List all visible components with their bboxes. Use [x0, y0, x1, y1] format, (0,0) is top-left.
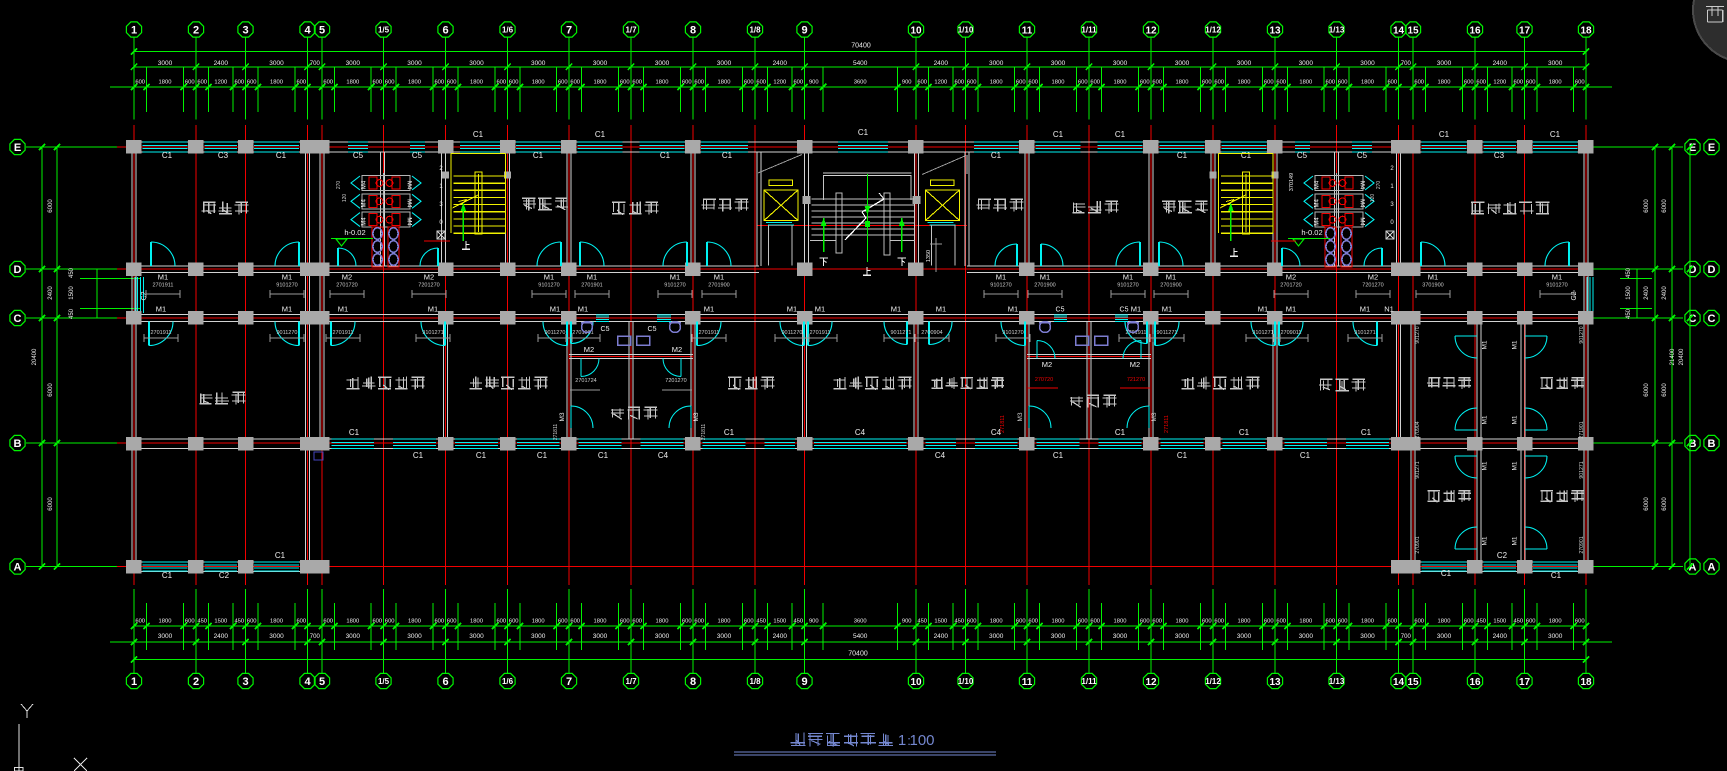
svg-text:1800: 1800 [1052, 619, 1065, 625]
svg-text:2701900: 2701900 [1034, 283, 1055, 289]
svg-text:M1: M1 [338, 305, 348, 314]
svg-text:M1: M1 [158, 273, 168, 282]
svg-text:6000: 6000 [48, 199, 54, 213]
svg-text:600: 600 [1028, 80, 1038, 86]
svg-text:700: 700 [1401, 634, 1412, 640]
svg-text:C1: C1 [533, 151, 544, 160]
svg-text:600: 600 [372, 80, 382, 86]
svg-text:600: 600 [632, 619, 642, 625]
svg-text:3600: 3600 [854, 80, 867, 86]
svg-text:C1: C1 [1115, 428, 1126, 437]
svg-text:9101271: 9101271 [422, 330, 443, 336]
svg-text:M1: M1 [1166, 273, 1176, 282]
svg-text:600: 600 [1338, 619, 1348, 625]
svg-text:6000: 6000 [48, 383, 54, 397]
svg-text:1200: 1200 [214, 80, 227, 86]
svg-text:M1: M1 [891, 305, 901, 314]
svg-text:901271: 901271 [1579, 461, 1585, 478]
svg-text:2400: 2400 [214, 633, 229, 640]
svg-text:9101270: 9101270 [276, 283, 297, 289]
svg-text:C1: C1 [1361, 428, 1372, 437]
svg-text:h-0.02: h-0.02 [344, 228, 365, 237]
svg-text:450: 450 [1513, 619, 1523, 625]
svg-text:1/11: 1/11 [1081, 677, 1097, 686]
svg-text:C5: C5 [1120, 307, 1129, 314]
svg-text:600: 600 [1414, 619, 1424, 625]
svg-text:M1: M1 [544, 273, 554, 282]
svg-text:450: 450 [793, 619, 803, 625]
svg-text:2709011: 2709011 [1280, 330, 1301, 336]
svg-text:3000: 3000 [158, 633, 173, 640]
svg-text:18: 18 [1580, 26, 1592, 37]
svg-text:3000: 3000 [1548, 60, 1563, 67]
svg-text:1500: 1500 [1493, 619, 1506, 625]
svg-text:2701911: 2701911 [809, 330, 830, 336]
svg-text:3000: 3000 [1548, 633, 1563, 640]
svg-text:3000: 3000 [158, 60, 173, 67]
svg-text:5400: 5400 [853, 60, 868, 67]
svg-text:C1: C1 [724, 428, 735, 437]
svg-text:70400: 70400 [851, 43, 871, 50]
svg-text:3: 3 [242, 676, 248, 688]
svg-text:7: 7 [566, 676, 572, 688]
svg-text:3000: 3000 [1237, 633, 1252, 640]
svg-text:E: E [14, 142, 21, 154]
svg-text:M1: M1 [815, 305, 825, 314]
svg-text:7201270: 7201270 [665, 378, 686, 384]
svg-text:600: 600 [247, 80, 257, 86]
svg-text:C5: C5 [1297, 151, 1308, 160]
svg-text:600: 600 [694, 619, 704, 625]
svg-text:2701911: 2701911 [152, 283, 173, 289]
svg-text:M1: M1 [1040, 273, 1050, 282]
svg-text:1800: 1800 [1299, 619, 1312, 625]
svg-text:600: 600 [1338, 80, 1348, 86]
svg-text:1800: 1800 [470, 80, 483, 86]
svg-text:600: 600 [967, 619, 977, 625]
svg-text:1800: 1800 [1361, 619, 1374, 625]
svg-text:600: 600 [1325, 619, 1335, 625]
svg-text:1800: 1800 [346, 619, 359, 625]
svg-text:B: B [14, 438, 22, 450]
svg-text:1800: 1800 [408, 80, 421, 86]
svg-text:1800: 1800 [159, 80, 172, 86]
svg-text:M2: M2 [584, 345, 594, 354]
svg-text:450: 450 [1626, 308, 1632, 319]
svg-text:600: 600 [1464, 619, 1474, 625]
svg-text:1/12: 1/12 [1205, 26, 1221, 35]
svg-text:C1: C1 [1241, 151, 1252, 160]
svg-text:C2: C2 [1571, 291, 1578, 300]
svg-text:600: 600 [1028, 619, 1038, 625]
svg-text:M2: M2 [1042, 360, 1052, 369]
svg-text:M1: M1 [787, 305, 797, 314]
svg-text:600: 600 [385, 619, 395, 625]
svg-text:600: 600 [620, 80, 630, 86]
svg-text:M1: M1 [428, 305, 438, 314]
svg-text:B: B [1708, 438, 1716, 450]
svg-text:600: 600 [1202, 80, 1212, 86]
svg-text:600: 600 [247, 619, 257, 625]
svg-text:3000: 3000 [1360, 60, 1375, 67]
svg-text:3000: 3000 [1237, 60, 1252, 67]
svg-text:C5: C5 [601, 326, 610, 333]
svg-text:600: 600 [682, 619, 692, 625]
svg-text:9: 9 [801, 676, 807, 688]
svg-text:9101270: 9101270 [990, 283, 1011, 289]
svg-text:1800: 1800 [532, 619, 545, 625]
svg-text:3000: 3000 [1299, 60, 1314, 67]
svg-text:2400: 2400 [48, 286, 54, 300]
svg-text:120: 120 [1370, 194, 1376, 203]
svg-text:C1: C1 [162, 571, 173, 580]
svg-text:600: 600 [793, 80, 803, 86]
svg-text:600: 600 [434, 80, 444, 86]
svg-text:C1: C1 [1551, 571, 1562, 580]
svg-text:450: 450 [917, 619, 927, 625]
svg-text:1800: 1800 [1438, 80, 1451, 86]
svg-text:1800: 1800 [718, 619, 731, 625]
svg-text:C5: C5 [1056, 307, 1065, 314]
svg-text:450: 450 [756, 619, 766, 625]
svg-text:11: 11 [1022, 677, 1033, 688]
svg-text:1800: 1800 [1052, 80, 1065, 86]
svg-text:14: 14 [1393, 677, 1405, 688]
svg-text:M1: M1 [714, 273, 724, 282]
svg-text:M4: M4 [1315, 198, 1321, 207]
svg-text:1800: 1800 [1114, 619, 1127, 625]
svg-text:6: 6 [442, 25, 448, 37]
svg-text:1200: 1200 [773, 80, 786, 86]
svg-text:721270: 721270 [1127, 377, 1145, 383]
svg-text:h-0.02: h-0.02 [1301, 228, 1322, 237]
svg-text:M1: M1 [670, 273, 680, 282]
svg-text:3000: 3000 [655, 633, 670, 640]
svg-text:600: 600 [296, 619, 306, 625]
svg-text:600: 600 [1090, 619, 1100, 625]
svg-text:10: 10 [910, 677, 922, 688]
svg-text:900: 900 [902, 619, 912, 625]
svg-text:1/8: 1/8 [749, 677, 761, 686]
svg-text:9011271: 9011271 [1156, 330, 1177, 336]
svg-text:3600: 3600 [854, 619, 867, 625]
svg-text:3000: 3000 [655, 60, 670, 67]
svg-text:600: 600 [1140, 619, 1150, 625]
svg-text:M1: M1 [1482, 461, 1489, 470]
svg-text:C1: C1 [1177, 151, 1188, 160]
svg-text:4: 4 [304, 25, 311, 37]
svg-text:1800: 1800 [594, 619, 607, 625]
svg-text:C1: C1 [275, 551, 286, 560]
svg-text:9101270: 9101270 [1546, 283, 1567, 289]
svg-text:12: 12 [1145, 26, 1157, 37]
svg-text:1800: 1800 [1361, 80, 1374, 86]
svg-text:13: 13 [1269, 677, 1281, 688]
svg-text:1/5: 1/5 [378, 26, 390, 35]
svg-text:1500: 1500 [1626, 286, 1632, 300]
svg-text:C2: C2 [219, 571, 230, 580]
svg-text:600: 600 [744, 80, 754, 86]
svg-text:1500: 1500 [214, 619, 227, 625]
svg-text:14: 14 [1393, 26, 1405, 37]
svg-text:M1: M1 [282, 273, 292, 282]
svg-text:1500: 1500 [69, 286, 75, 300]
svg-text:450: 450 [197, 619, 207, 625]
svg-text:C4: C4 [855, 428, 866, 437]
svg-text:9101270: 9101270 [1117, 283, 1138, 289]
svg-text:1/8: 1/8 [749, 26, 761, 35]
svg-text:1/7: 1/7 [625, 26, 637, 35]
svg-text:600: 600 [509, 619, 519, 625]
svg-text:6000: 6000 [1662, 497, 1668, 511]
svg-text:10: 10 [910, 26, 922, 37]
svg-text:C1: C1 [598, 451, 609, 460]
svg-text:100: 100 [909, 732, 934, 749]
svg-text:M1: M1 [550, 305, 560, 314]
svg-text:3000: 3000 [717, 633, 732, 640]
svg-text:C: C [14, 313, 22, 325]
svg-text:600: 600 [1387, 80, 1397, 86]
svg-text:8: 8 [690, 25, 696, 37]
svg-text:600: 600 [1264, 619, 1274, 625]
svg-text:M2: M2 [1130, 360, 1140, 369]
svg-text:16: 16 [1469, 26, 1481, 37]
svg-text:3000: 3000 [593, 60, 608, 67]
svg-text:M4: M4 [1359, 181, 1365, 190]
svg-text:M1: M1 [1512, 461, 1519, 470]
svg-text:21400: 21400 [1670, 348, 1676, 365]
svg-text:6000: 6000 [1662, 383, 1668, 397]
svg-text:1800: 1800 [1176, 619, 1189, 625]
svg-text:600: 600 [1387, 619, 1397, 625]
svg-text:600: 600 [1016, 619, 1026, 625]
svg-text:901271: 901271 [1415, 461, 1421, 478]
svg-text:M1: M1 [1008, 305, 1018, 314]
svg-text:900: 900 [809, 80, 819, 86]
svg-text:1800: 1800 [1549, 619, 1562, 625]
svg-text:M4: M4 [362, 217, 368, 226]
svg-text:600: 600 [496, 619, 506, 625]
svg-text:1800: 1800 [346, 80, 359, 86]
svg-text:M1: M1 [578, 305, 588, 314]
svg-text:600: 600 [1526, 619, 1536, 625]
svg-text:1/13: 1/13 [1329, 26, 1345, 35]
svg-text:6000: 6000 [48, 497, 54, 511]
svg-text:600: 600 [570, 80, 580, 86]
svg-text:1800: 1800 [1114, 80, 1127, 86]
svg-text:M1: M1 [587, 273, 597, 282]
svg-text:600: 600 [1152, 80, 1162, 86]
svg-text:1800: 1800 [718, 80, 731, 86]
svg-text:1800: 1800 [270, 619, 283, 625]
svg-text:3000: 3000 [717, 60, 732, 67]
svg-text:2701724: 2701724 [575, 378, 596, 384]
svg-text:3000: 3000 [989, 60, 1004, 67]
svg-text:3000: 3000 [531, 633, 546, 640]
svg-text:M3: M3 [1017, 412, 1024, 421]
svg-text:450: 450 [69, 267, 75, 278]
svg-text:600: 600 [967, 80, 977, 86]
svg-text:6: 6 [442, 676, 448, 688]
svg-text:1350: 1350 [926, 250, 932, 262]
svg-text:270904: 270904 [1415, 421, 1421, 438]
svg-text:600: 600 [570, 619, 580, 625]
svg-text:3000: 3000 [407, 633, 422, 640]
svg-text:M1: M1 [1162, 305, 1172, 314]
svg-text:600: 600 [1202, 619, 1212, 625]
svg-text:1800: 1800 [1176, 80, 1189, 86]
svg-text:16: 16 [1469, 677, 1481, 688]
svg-text:17: 17 [1519, 677, 1531, 688]
svg-text:9101270: 9101270 [664, 283, 685, 289]
svg-text:450: 450 [234, 619, 244, 625]
svg-text:9011270: 9011270 [544, 330, 565, 336]
svg-text:1200: 1200 [934, 80, 947, 86]
svg-text:6000: 6000 [1644, 497, 1650, 511]
svg-text:1500: 1500 [934, 619, 947, 625]
svg-text:M1: M1 [1123, 273, 1133, 282]
svg-text:C2: C2 [141, 291, 148, 300]
svg-text:1800: 1800 [1238, 80, 1251, 86]
svg-text:600: 600 [694, 80, 704, 86]
svg-text:1/7: 1/7 [625, 677, 637, 686]
svg-text:C1: C1 [1300, 451, 1311, 460]
svg-text:20400: 20400 [32, 348, 38, 365]
svg-text:3000: 3000 [269, 633, 284, 640]
svg-text:C1: C1 [858, 128, 869, 137]
svg-text:2400: 2400 [214, 60, 229, 67]
svg-text:M1: M1 [1131, 305, 1141, 314]
svg-text:3000: 3000 [1113, 633, 1128, 640]
svg-text:C4: C4 [658, 451, 669, 460]
svg-text:1: 1 [131, 676, 137, 688]
svg-text:C5: C5 [353, 151, 364, 160]
svg-text:600: 600 [372, 619, 382, 625]
svg-text:D: D [14, 264, 22, 276]
svg-text:1800: 1800 [408, 619, 421, 625]
svg-text:2: 2 [193, 25, 199, 37]
svg-text:C1: C1 [1239, 428, 1250, 437]
svg-text:6000: 6000 [1662, 199, 1668, 213]
svg-text:600: 600 [954, 80, 964, 86]
svg-text:1/5: 1/5 [378, 677, 390, 686]
svg-text:600: 600 [1575, 80, 1585, 86]
svg-text:C1: C1 [595, 130, 606, 139]
svg-text:600: 600 [1575, 619, 1585, 625]
svg-text:1800: 1800 [270, 80, 283, 86]
svg-text:600: 600 [1016, 80, 1026, 86]
svg-text:3000: 3000 [269, 60, 284, 67]
svg-text:600: 600 [632, 80, 642, 86]
svg-text:2701911: 2701911 [150, 330, 171, 336]
svg-text:C: C [1708, 313, 1716, 325]
svg-text:3000: 3000 [1437, 60, 1452, 67]
svg-text:M4: M4 [362, 198, 368, 207]
svg-text:270720: 270720 [1035, 377, 1053, 383]
svg-text:1/10: 1/10 [958, 677, 974, 686]
svg-text:15: 15 [1407, 26, 1419, 37]
svg-text:271901: 271901 [1579, 421, 1585, 438]
svg-text:600: 600 [1078, 80, 1088, 86]
svg-text:M1: M1 [156, 305, 166, 314]
svg-text:600: 600 [1264, 80, 1274, 86]
svg-text:M2: M2 [342, 273, 352, 282]
svg-text:M1: M1 [1482, 340, 1489, 349]
svg-text:M4: M4 [1359, 199, 1365, 208]
svg-text:4: 4 [304, 676, 311, 688]
svg-text:120: 120 [342, 194, 348, 203]
svg-text:M1: M1 [936, 305, 946, 314]
svg-text:5: 5 [319, 676, 325, 688]
svg-text:5400: 5400 [853, 633, 868, 640]
svg-text:M2: M2 [1368, 273, 1378, 282]
svg-text:2400: 2400 [1493, 60, 1508, 67]
svg-text:900: 900 [809, 619, 819, 625]
svg-text:M4: M4 [1315, 217, 1321, 226]
svg-text:600: 600 [385, 80, 395, 86]
svg-text:3000: 3000 [1437, 633, 1452, 640]
svg-text:1/6: 1/6 [502, 26, 514, 35]
svg-text:600: 600 [1090, 80, 1100, 86]
svg-text:3000: 3000 [1360, 633, 1375, 640]
svg-text:600: 600 [1276, 619, 1286, 625]
svg-text:3000: 3000 [1051, 633, 1066, 640]
svg-text:C5: C5 [412, 151, 423, 160]
svg-text:M1: M1 [1286, 305, 1296, 314]
svg-text:9: 9 [801, 25, 807, 37]
svg-text:1: 1 [131, 25, 137, 37]
svg-text:3: 3 [242, 25, 248, 37]
svg-text:M2: M2 [424, 273, 434, 282]
svg-text:2: 2 [193, 676, 199, 688]
svg-text:9101271: 9101271 [1354, 330, 1375, 336]
svg-text:3000: 3000 [346, 633, 361, 640]
svg-text:M4: M4 [406, 217, 412, 226]
svg-text:1800: 1800 [159, 619, 172, 625]
svg-text:2701900: 2701900 [1160, 283, 1181, 289]
svg-text:2700904: 2700904 [921, 330, 942, 336]
svg-text:C1: C1 [1441, 569, 1452, 578]
svg-text:600: 600 [1152, 619, 1162, 625]
svg-text:600: 600 [1526, 80, 1536, 86]
svg-text:9011270: 9011270 [781, 330, 802, 336]
svg-text:600: 600 [917, 80, 927, 86]
svg-text:11: 11 [1022, 26, 1033, 37]
svg-text:C1: C1 [1177, 451, 1188, 460]
svg-text:M1: M1 [1512, 340, 1519, 349]
svg-text:600: 600 [620, 619, 630, 625]
svg-text:3000: 3000 [593, 633, 608, 640]
svg-text:9011271: 9011271 [890, 330, 911, 336]
svg-text:450: 450 [69, 308, 75, 319]
svg-text:1800: 1800 [532, 80, 545, 86]
svg-text:C3: C3 [1494, 151, 1505, 160]
svg-text:450: 450 [1626, 267, 1632, 278]
svg-text:270: 270 [336, 181, 342, 190]
svg-text:271811: 271811 [553, 424, 559, 441]
svg-text:600: 600 [447, 80, 457, 86]
svg-text:3000: 3000 [1175, 633, 1190, 640]
svg-text:3000: 3000 [469, 60, 484, 67]
svg-text:C1: C1 [537, 451, 548, 460]
svg-text:1/6: 1/6 [502, 677, 514, 686]
svg-text:450: 450 [1476, 619, 1486, 625]
svg-text:600: 600 [447, 619, 457, 625]
svg-text:450: 450 [954, 619, 964, 625]
svg-text:M4: M4 [362, 180, 368, 189]
svg-text:3000: 3000 [1051, 60, 1066, 67]
svg-text:1/10: 1/10 [958, 26, 974, 35]
